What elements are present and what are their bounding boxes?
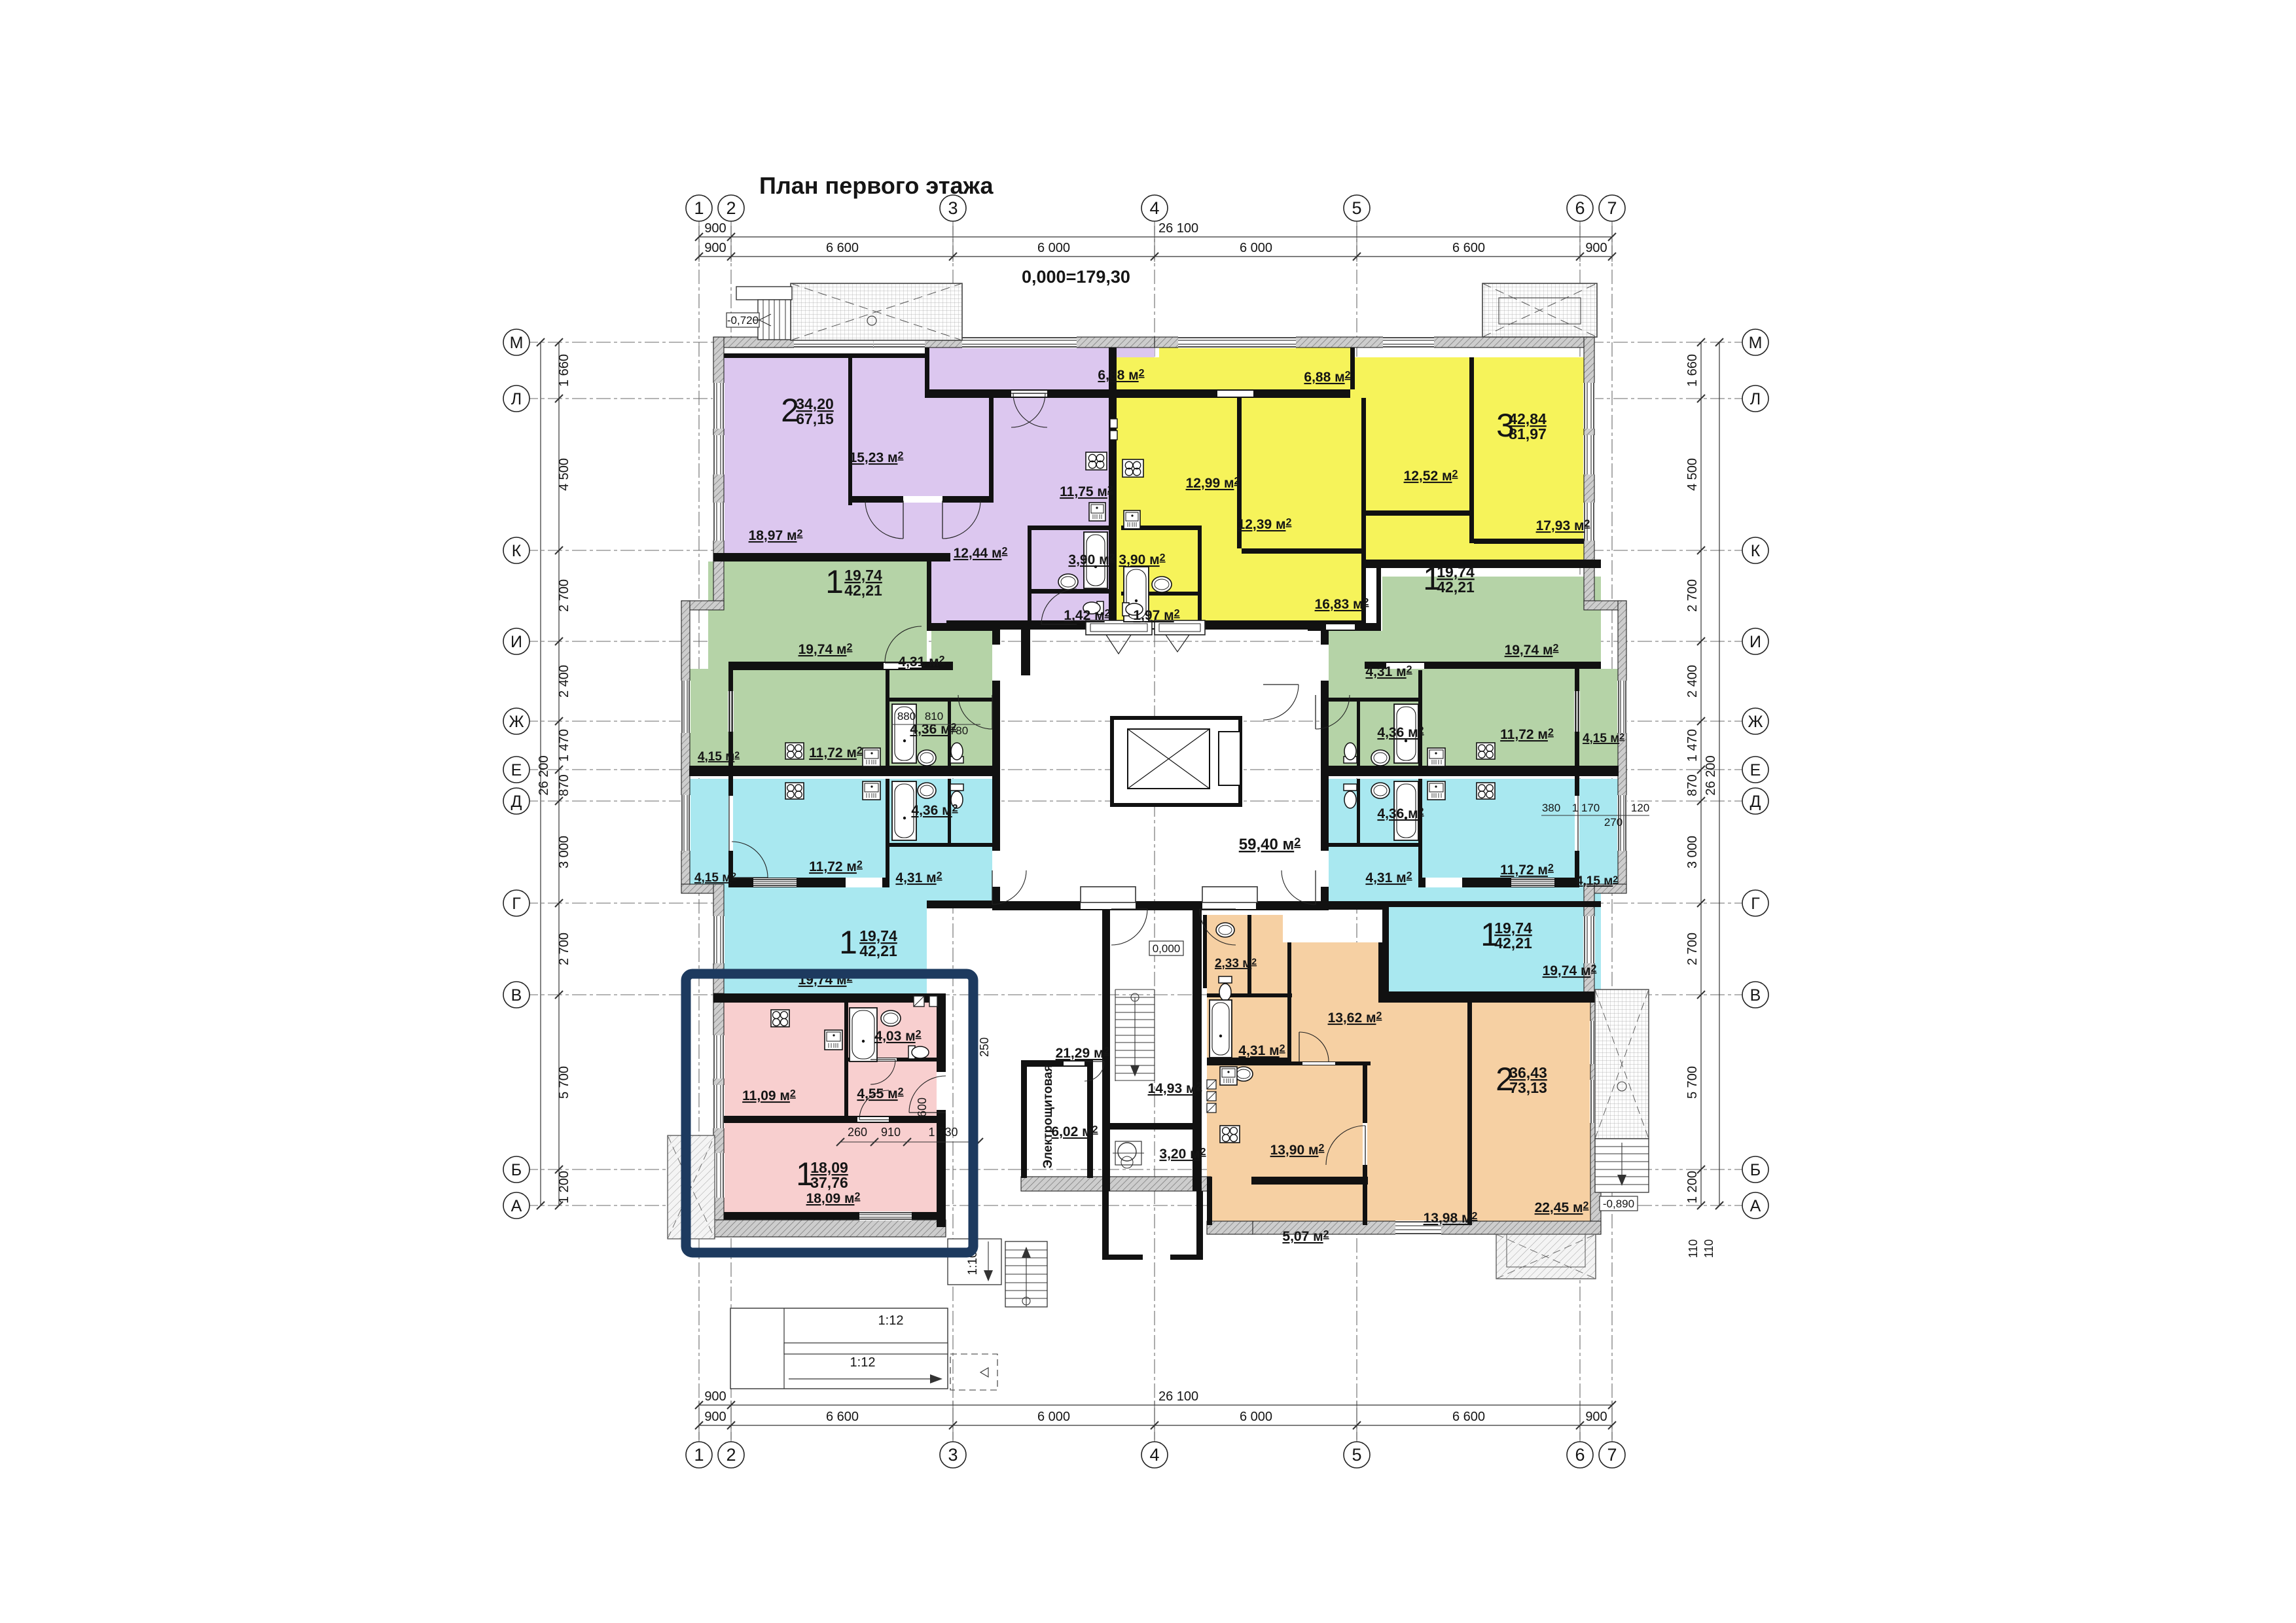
svg-text:3,20 м2: 3,20 м2: [1159, 1147, 1206, 1162]
svg-text:2 400: 2 400: [557, 665, 571, 698]
svg-text:1 660: 1 660: [557, 354, 571, 387]
svg-text:Л: Л: [1750, 390, 1761, 408]
svg-text:42,21: 42,21: [859, 942, 897, 959]
svg-text:4,15 м2: 4,15 м2: [694, 870, 736, 885]
svg-text:19,74 м2: 19,74 м2: [1505, 643, 1559, 658]
svg-text:4: 4: [1149, 1445, 1159, 1465]
svg-text:13,62 м2: 13,62 м2: [1328, 1010, 1382, 1026]
svg-text:19,74 м2: 19,74 м2: [798, 642, 853, 657]
svg-text:3 000: 3 000: [557, 836, 571, 868]
svg-text:1: 1: [839, 924, 857, 961]
svg-text:7: 7: [1607, 198, 1617, 218]
svg-text:Е: Е: [1750, 761, 1761, 779]
svg-text:5: 5: [1352, 198, 1361, 218]
svg-text:6 000: 6 000: [1240, 1410, 1272, 1424]
svg-text:1 200: 1 200: [1685, 1171, 1700, 1204]
svg-text:2 700: 2 700: [557, 579, 571, 612]
svg-text:880: 880: [897, 710, 916, 722]
svg-text:870: 870: [1685, 774, 1700, 796]
svg-text:2,33 м2: 2,33 м2: [1215, 956, 1257, 971]
svg-text:250: 250: [978, 1037, 991, 1057]
svg-text:4: 4: [1149, 198, 1159, 218]
svg-text:6,88 м2: 6,88 м2: [1304, 370, 1350, 385]
svg-text:6: 6: [1575, 1445, 1585, 1465]
svg-text:6: 6: [1575, 198, 1585, 218]
svg-text:2: 2: [726, 1445, 736, 1465]
svg-text:18,09 м2: 18,09 м2: [806, 1191, 861, 1206]
svg-text:110: 110: [1687, 1240, 1700, 1258]
svg-text:7: 7: [1607, 1445, 1617, 1465]
svg-text:900: 900: [704, 221, 726, 236]
svg-text:2 700: 2 700: [557, 933, 571, 965]
svg-text:Л: Л: [511, 390, 522, 408]
svg-text:5 700: 5 700: [1685, 1066, 1700, 1099]
svg-text:26 100: 26 100: [1158, 1389, 1198, 1404]
svg-text:1,42 м2: 1,42 м2: [1064, 608, 1110, 623]
svg-text:900: 900: [704, 241, 726, 255]
svg-text:4 500: 4 500: [557, 458, 571, 491]
svg-text:3: 3: [948, 1445, 958, 1465]
svg-text:260: 260: [848, 1126, 867, 1139]
svg-text:0,000: 0,000: [1153, 942, 1181, 955]
svg-text:Д: Д: [511, 793, 522, 811]
svg-text:3,90 м2: 3,90 м2: [1119, 552, 1165, 567]
svg-text:4,15 м2: 4,15 м2: [1583, 731, 1624, 745]
svg-text:План первого этажа: План первого этажа: [759, 172, 994, 199]
svg-text:59,40 м2: 59,40 м2: [1239, 836, 1301, 853]
svg-text:Г: Г: [512, 895, 521, 913]
svg-text:26 200: 26 200: [537, 755, 551, 795]
svg-text:3 000: 3 000: [1685, 836, 1700, 868]
svg-text:5 700: 5 700: [557, 1066, 571, 1099]
svg-text:42,21: 42,21: [844, 582, 882, 599]
svg-text:4,36 м2: 4,36 м2: [1377, 725, 1424, 740]
svg-text:Г: Г: [1751, 895, 1760, 913]
svg-text:4,36 м2: 4,36 м2: [911, 803, 958, 818]
svg-text:910: 910: [881, 1126, 901, 1139]
svg-text:1 660: 1 660: [1685, 354, 1700, 387]
svg-text:37,76: 37,76: [810, 1174, 848, 1191]
svg-text:4,15 м2: 4,15 м2: [698, 749, 740, 764]
svg-text:21,29 м2: 21,29 м2: [1056, 1046, 1110, 1061]
svg-text:900: 900: [1585, 1410, 1607, 1424]
svg-text:1,97 м2: 1,97 м2: [1133, 608, 1179, 623]
svg-text:5: 5: [1352, 1445, 1361, 1465]
svg-text:12,39 м2: 12,39 м2: [1238, 517, 1292, 532]
svg-text:1: 1: [694, 1445, 704, 1465]
svg-text:1:12: 1:12: [850, 1355, 876, 1370]
svg-text:2 700: 2 700: [1685, 579, 1700, 612]
svg-text:В: В: [511, 986, 522, 1005]
svg-text:3,90 м2: 3,90 м2: [1068, 552, 1115, 567]
svg-text:-0,890: -0,890: [1603, 1198, 1634, 1210]
svg-text:Е: Е: [511, 761, 522, 779]
svg-text:870: 870: [557, 774, 571, 796]
svg-text:42,21: 42,21: [1494, 935, 1532, 952]
svg-text:1: 1: [825, 563, 844, 600]
svg-text:5,07 м2: 5,07 м2: [1282, 1229, 1329, 1244]
svg-text:2: 2: [726, 198, 736, 218]
svg-text:13,90 м2: 13,90 м2: [1270, 1143, 1325, 1158]
svg-text:12,52 м2: 12,52 м2: [1404, 469, 1458, 484]
svg-text:19,74 м2: 19,74 м2: [1543, 963, 1597, 978]
svg-text:810: 810: [925, 710, 943, 722]
svg-text:М: М: [1749, 334, 1763, 352]
svg-text:6 000: 6 000: [1037, 241, 1070, 255]
svg-text:В: В: [1750, 986, 1761, 1005]
svg-text:15,23 м2: 15,23 м2: [850, 450, 904, 465]
svg-text:1 470: 1 470: [557, 729, 571, 762]
svg-text:К: К: [1751, 542, 1761, 560]
svg-text:4,31 м2: 4,31 м2: [1238, 1043, 1285, 1058]
svg-text:110: 110: [1702, 1240, 1715, 1258]
svg-text:Ж: Ж: [1748, 713, 1763, 731]
svg-text:380: 380: [1542, 802, 1560, 814]
svg-text:73,13: 73,13: [1509, 1079, 1547, 1096]
svg-text:6 600: 6 600: [1452, 1410, 1485, 1424]
svg-text:0,000=179,30: 0,000=179,30: [1022, 267, 1130, 287]
svg-text:13,98 м2: 13,98 м2: [1424, 1211, 1478, 1226]
svg-text:900: 900: [704, 1389, 726, 1404]
svg-text:М: М: [510, 334, 524, 352]
svg-text:4,31 м2: 4,31 м2: [895, 870, 942, 885]
svg-text:1 730: 1 730: [928, 1126, 958, 1139]
svg-text:14,93 м2: 14,93 м2: [1148, 1081, 1202, 1096]
svg-text:900: 900: [1585, 241, 1607, 255]
svg-text:11,75 м2: 11,75 м2: [1060, 484, 1113, 499]
svg-text:11,72 м2: 11,72 м2: [809, 859, 863, 874]
svg-text:900: 900: [704, 1410, 726, 1424]
svg-text:22,45 м2: 22,45 м2: [1535, 1200, 1589, 1215]
svg-text:120: 120: [1631, 802, 1649, 814]
svg-text:2 400: 2 400: [1685, 665, 1700, 698]
svg-text:26 100: 26 100: [1158, 221, 1198, 236]
svg-text:26 200: 26 200: [1704, 755, 1718, 795]
svg-text:А: А: [1750, 1197, 1761, 1215]
svg-text:16,83 м2: 16,83 м2: [1315, 597, 1369, 612]
svg-text:6 000: 6 000: [1240, 241, 1272, 255]
svg-text:6 000: 6 000: [1037, 1410, 1070, 1424]
svg-text:4,36 м2: 4,36 м2: [1377, 806, 1424, 821]
svg-text:6 600: 6 600: [826, 241, 859, 255]
svg-text:600: 600: [916, 1097, 929, 1117]
svg-text:11,72 м2: 11,72 м2: [809, 745, 863, 760]
svg-text:17,93 м2: 17,93 м2: [1536, 518, 1590, 533]
svg-text:1: 1: [694, 198, 704, 218]
svg-text:И: И: [1749, 633, 1761, 651]
svg-text:1 200: 1 200: [557, 1171, 571, 1204]
svg-text:18,97 м2: 18,97 м2: [749, 528, 803, 543]
svg-text:4,31 м2: 4,31 м2: [1365, 870, 1412, 885]
svg-text:12,44 м2: 12,44 м2: [954, 546, 1008, 561]
svg-text:И: И: [511, 633, 522, 651]
svg-text:4,03 м2: 4,03 м2: [874, 1029, 921, 1044]
svg-text:Б: Б: [511, 1161, 522, 1179]
svg-text:К: К: [512, 542, 522, 560]
svg-text:11,72 м2: 11,72 м2: [1500, 863, 1554, 878]
svg-text:270: 270: [1604, 816, 1623, 829]
svg-text:Б: Б: [1750, 1161, 1761, 1179]
svg-text:Электрощитовая: Электрощитовая: [1041, 1065, 1055, 1169]
svg-text:12,99 м2: 12,99 м2: [1186, 476, 1240, 491]
svg-text:4,31 м2: 4,31 м2: [1365, 664, 1412, 679]
svg-text:6,88 м2: 6,88 м2: [1098, 368, 1144, 383]
svg-text:Д: Д: [1750, 793, 1761, 811]
svg-text:67,15: 67,15: [796, 410, 834, 427]
svg-text:1 470: 1 470: [1685, 729, 1700, 762]
svg-text:4,15 м2: 4,15 м2: [1576, 874, 1618, 888]
svg-text:3: 3: [948, 198, 958, 218]
svg-text:42,21: 42,21: [1437, 579, 1475, 596]
svg-text:11,09 м2: 11,09 м2: [742, 1088, 796, 1103]
svg-text:Ж: Ж: [509, 713, 524, 731]
svg-text:4 500: 4 500: [1685, 458, 1700, 491]
svg-text:6 600: 6 600: [826, 1410, 859, 1424]
svg-text:6 600: 6 600: [1452, 241, 1485, 255]
svg-text:А: А: [511, 1197, 522, 1215]
svg-text:6,02 м2: 6,02 м2: [1051, 1124, 1098, 1139]
svg-text:81,97: 81,97: [1509, 425, 1547, 442]
svg-text:4,31 м2: 4,31 м2: [898, 654, 944, 669]
svg-text:4,55 м2: 4,55 м2: [857, 1086, 903, 1101]
svg-text:11,72 м2: 11,72 м2: [1500, 727, 1554, 742]
svg-text:1 170: 1 170: [1572, 802, 1600, 814]
svg-text:2 700: 2 700: [1685, 933, 1700, 965]
svg-text:780: 780: [950, 724, 968, 737]
svg-text:1:12: 1:12: [878, 1313, 904, 1328]
